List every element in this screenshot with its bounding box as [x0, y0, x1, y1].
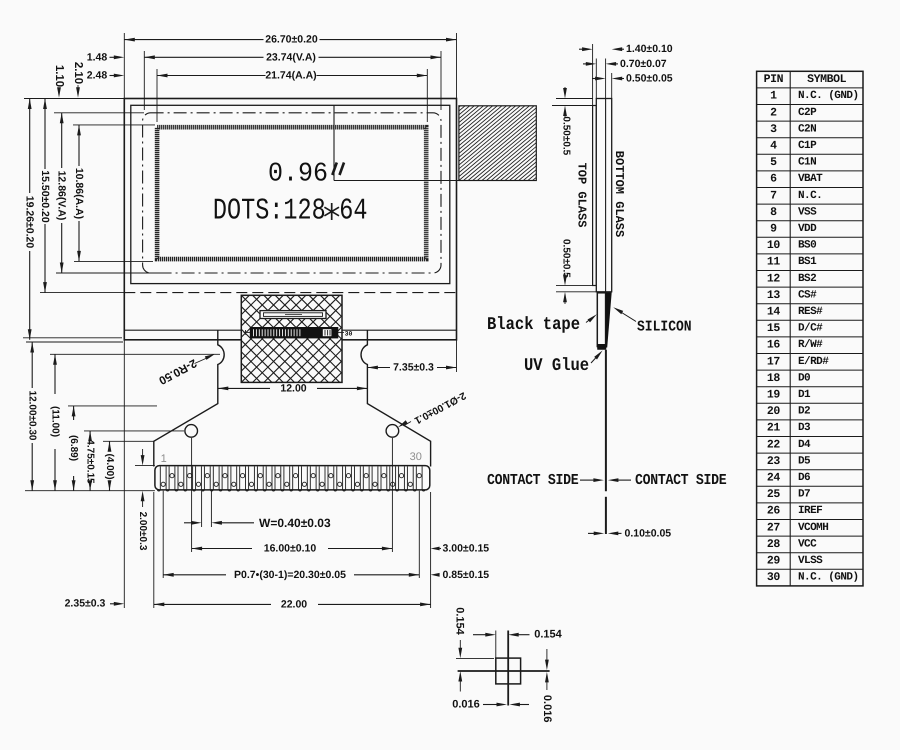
svg-text:22.00: 22.00: [281, 598, 307, 610]
svg-text:C2N: C2N: [798, 123, 816, 135]
svg-text:23.74(V.A): 23.74(V.A): [266, 51, 316, 63]
svg-text:0.10±0.05: 0.10±0.05: [625, 527, 672, 539]
svg-text:0.016: 0.016: [541, 695, 553, 723]
svg-text:18: 18: [767, 372, 781, 385]
svg-text:16.00±0.10: 16.00±0.10: [264, 543, 317, 555]
svg-text:1.48: 1.48: [87, 51, 108, 63]
svg-text:C2P: C2P: [798, 107, 817, 119]
svg-text:15: 15: [767, 322, 781, 335]
svg-text:0.154: 0.154: [454, 607, 466, 635]
svg-text:(4.00): (4.00): [104, 453, 115, 479]
svg-text:10: 10: [767, 239, 781, 252]
svg-text:5: 5: [770, 156, 777, 169]
svg-text:0.96: 0.96: [268, 158, 328, 189]
svg-text:22: 22: [767, 438, 781, 451]
svg-text:8: 8: [770, 206, 777, 219]
svg-text:4: 4: [770, 140, 777, 153]
svg-text:2.35±0.3: 2.35±0.3: [65, 598, 106, 610]
svg-text:IREF: IREF: [798, 505, 822, 517]
svg-text:2.10: 2.10: [72, 62, 84, 84]
svg-text:3.00±0.15: 3.00±0.15: [443, 543, 490, 555]
svg-text:VCOMH: VCOMH: [798, 522, 828, 534]
svg-text:BS1: BS1: [798, 256, 817, 268]
svg-text:26: 26: [767, 505, 781, 518]
svg-text:7.35±0.3: 7.35±0.3: [393, 362, 434, 374]
svg-text:CS#: CS#: [798, 289, 817, 301]
svg-text:64: 64: [339, 194, 367, 229]
svg-text:PIN: PIN: [764, 73, 784, 86]
svg-text:12: 12: [767, 272, 781, 285]
svg-text:RES#: RES#: [798, 306, 823, 318]
svg-text:0.50±0.05: 0.50±0.05: [626, 73, 673, 85]
svg-text:D4: D4: [798, 439, 811, 451]
svg-text:E/RD#: E/RD#: [798, 356, 829, 368]
svg-text:2.00±0.3: 2.00±0.3: [137, 512, 148, 551]
svg-text:C1P: C1P: [798, 140, 817, 152]
svg-text:4.75±0.15: 4.75±0.15: [85, 439, 96, 484]
svg-text:SILICON: SILICON: [637, 318, 692, 335]
svg-text:N.C.: N.C.: [798, 190, 822, 202]
svg-text:21: 21: [767, 422, 781, 435]
svg-text:VBAT: VBAT: [798, 173, 823, 185]
svg-text:12.00±0.30: 12.00±0.30: [27, 391, 38, 441]
svg-text:1.10: 1.10: [53, 65, 65, 87]
svg-text:10.86(A.A): 10.86(A.A): [73, 168, 85, 219]
svg-text:SYMBOL: SYMBOL: [807, 73, 847, 86]
svg-text:0.154: 0.154: [534, 629, 562, 641]
svg-text:D5: D5: [798, 455, 811, 467]
svg-text:D7: D7: [798, 489, 810, 501]
svg-text:VSS: VSS: [798, 206, 817, 218]
svg-text:W=0.40±0.03: W=0.40±0.03: [259, 516, 331, 530]
svg-text:23: 23: [767, 455, 781, 468]
svg-text:(11.00): (11.00): [50, 406, 61, 437]
svg-text:DOTS:128: DOTS:128: [213, 194, 326, 229]
svg-text:9: 9: [770, 223, 777, 236]
svg-text:0.50±0.5: 0.50±0.5: [561, 116, 572, 155]
svg-text:D/C#: D/C#: [798, 323, 823, 335]
svg-text:D0: D0: [798, 372, 810, 384]
svg-text:UV Glue: UV Glue: [524, 355, 589, 376]
svg-text:26.70±0.20: 26.70±0.20: [265, 34, 318, 46]
svg-text:24: 24: [767, 472, 781, 485]
svg-text:D1: D1: [798, 389, 811, 401]
svg-text:VLSS: VLSS: [798, 555, 823, 567]
svg-text:19: 19: [767, 389, 781, 402]
svg-text:3: 3: [770, 123, 777, 136]
svg-text:2.48: 2.48: [87, 70, 108, 82]
svg-text:(6.89): (6.89): [68, 435, 79, 461]
svg-text:17: 17: [767, 355, 781, 368]
svg-text:28: 28: [767, 538, 781, 551]
svg-text:20: 20: [767, 405, 781, 418]
svg-text:30: 30: [345, 331, 353, 338]
svg-text:13: 13: [767, 289, 781, 302]
svg-text:1: 1: [161, 453, 167, 465]
svg-text:7: 7: [770, 189, 777, 202]
svg-text:D6: D6: [798, 472, 810, 484]
svg-text:N.C. (GND): N.C. (GND): [798, 572, 859, 584]
svg-text:25: 25: [767, 488, 781, 501]
svg-text:P0.7•(30-1)=20.30±0.05: P0.7•(30-1)=20.30±0.05: [234, 569, 346, 581]
svg-text:15.50±0.20: 15.50±0.20: [39, 170, 51, 223]
svg-text:30: 30: [410, 451, 422, 463]
svg-text:BS2: BS2: [798, 273, 816, 285]
svg-text:D2: D2: [798, 406, 810, 418]
svg-text:N.C. (GND): N.C. (GND): [798, 90, 859, 102]
svg-text:11: 11: [767, 256, 781, 269]
svg-text:30: 30: [767, 571, 781, 584]
svg-text:0.70±0.07: 0.70±0.07: [620, 58, 667, 70]
svg-text:0.85±0.15: 0.85±0.15: [443, 569, 490, 581]
svg-text:6: 6: [770, 173, 777, 186]
svg-text:19.26±0.20: 19.26±0.20: [24, 196, 36, 249]
svg-text:CONTACT SIDE: CONTACT SIDE: [487, 471, 579, 488]
svg-text:27: 27: [767, 521, 781, 534]
svg-text:0.016: 0.016: [452, 699, 480, 711]
svg-text:C1N: C1N: [798, 157, 816, 169]
svg-text:BS0: BS0: [798, 240, 816, 252]
svg-text:VCC: VCC: [798, 538, 817, 550]
svg-text:12.86(V.A): 12.86(V.A): [56, 171, 68, 221]
svg-text:CONTACT SIDE: CONTACT SIDE: [635, 471, 727, 488]
svg-text:2: 2: [770, 106, 777, 119]
svg-text:16: 16: [767, 339, 781, 352]
svg-text:Black tape: Black tape: [487, 314, 580, 335]
svg-text:BOTTOM GLASS: BOTTOM GLASS: [612, 151, 626, 237]
svg-text:VDD: VDD: [798, 223, 817, 235]
svg-text:12.00: 12.00: [280, 382, 306, 394]
svg-text:1.40±0.10: 1.40±0.10: [626, 43, 673, 55]
svg-text:R/W#: R/W#: [798, 339, 823, 351]
svg-text:21.74(A.A): 21.74(A.A): [265, 70, 316, 82]
svg-text:14: 14: [767, 306, 781, 319]
svg-text:1: 1: [770, 90, 777, 103]
svg-text:29: 29: [767, 555, 781, 568]
svg-text:D3: D3: [798, 422, 811, 434]
svg-text:0.50±0.5: 0.50±0.5: [561, 239, 572, 278]
svg-text:TOP GLASS: TOP GLASS: [575, 163, 589, 228]
